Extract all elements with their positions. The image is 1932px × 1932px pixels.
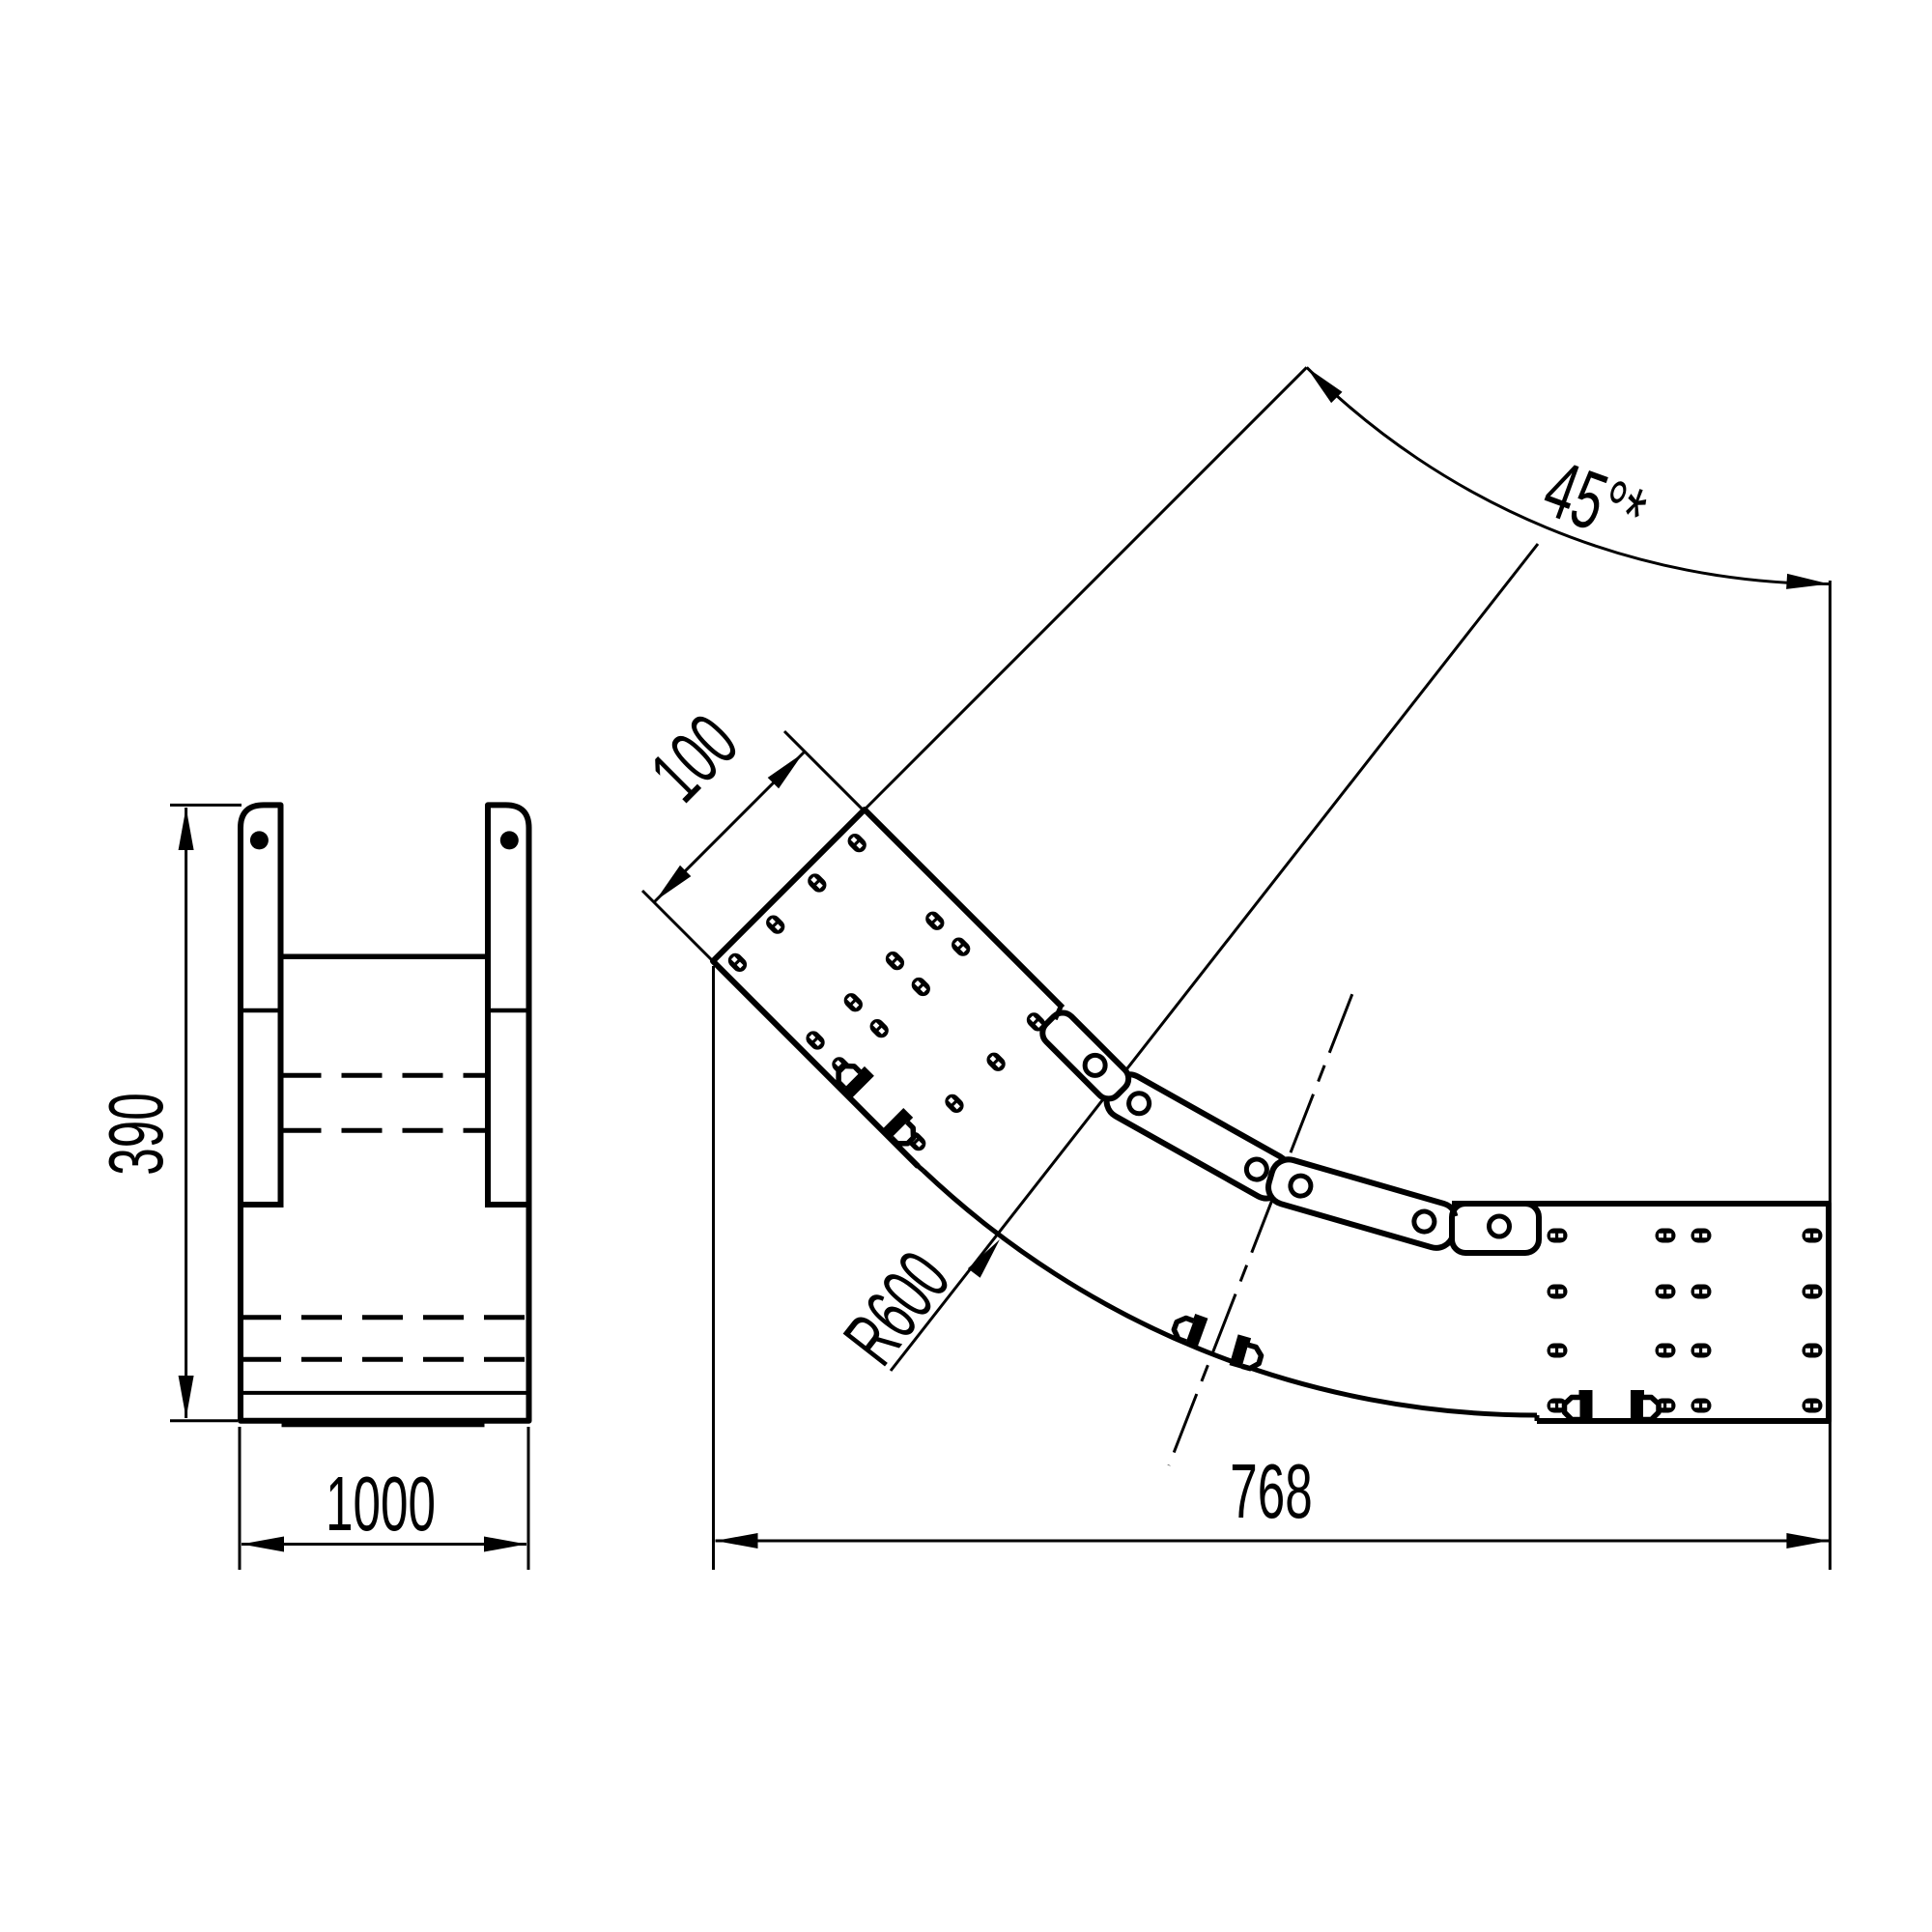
svg-text:768: 768 xyxy=(1230,1449,1312,1535)
svg-text:1000: 1000 xyxy=(326,1462,436,1548)
svg-text:390: 390 xyxy=(94,1093,180,1175)
